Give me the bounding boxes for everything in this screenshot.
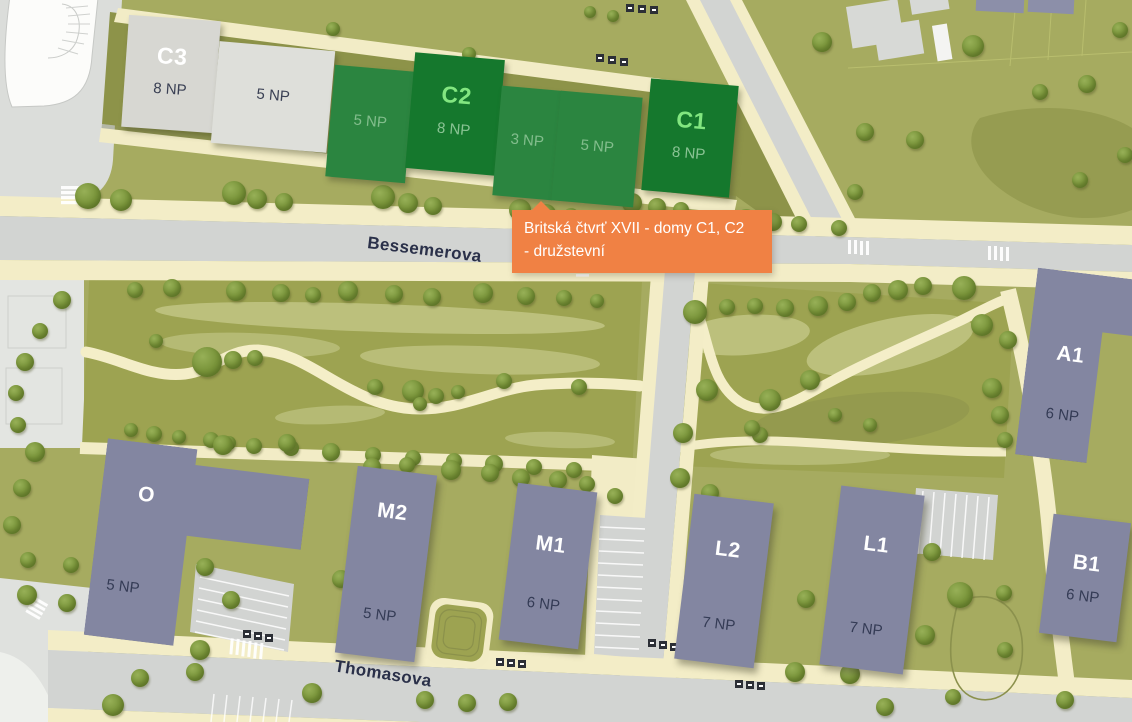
building-label: O [137, 482, 157, 508]
tree [247, 350, 263, 366]
tree [999, 331, 1017, 349]
tree [696, 379, 718, 401]
tree [17, 585, 37, 605]
tree [1072, 172, 1088, 188]
tree [192, 347, 222, 377]
tree [423, 288, 441, 306]
tree [326, 22, 340, 36]
tree [416, 691, 434, 709]
tree [131, 669, 149, 687]
building-floors: 5 NP [353, 111, 388, 131]
tree [828, 408, 842, 422]
tree [110, 189, 132, 211]
building-floors: 5 NP [362, 605, 397, 626]
tree [915, 625, 935, 645]
building-floors: 6 NP [526, 594, 561, 615]
tree [1112, 22, 1128, 38]
tree [607, 10, 619, 22]
tree [127, 282, 143, 298]
building-green-5np-west[interactable]: 5 NP [325, 65, 414, 184]
tree [982, 378, 1002, 398]
tree [481, 464, 499, 482]
playground [423, 596, 495, 669]
building-green-3np[interactable]: 3 NP [492, 86, 561, 201]
tree [785, 662, 805, 682]
tree [124, 423, 138, 437]
tree [222, 181, 246, 205]
building-c2[interactable]: C2 8 NP [405, 52, 505, 175]
building-label: L1 [862, 532, 890, 559]
tree [566, 462, 582, 478]
tree [607, 488, 623, 504]
tree [213, 435, 233, 455]
tree [556, 290, 572, 306]
tree [102, 694, 124, 716]
tree [322, 443, 340, 461]
tree [338, 281, 358, 301]
tree [222, 591, 240, 609]
tree [413, 397, 427, 411]
tree [367, 379, 383, 395]
tree [451, 385, 465, 399]
building-label: A1 [1055, 342, 1086, 369]
tree [371, 185, 395, 209]
building-label: M1 [534, 531, 567, 559]
tree [473, 283, 493, 303]
parking-m1 [594, 515, 646, 658]
building-c3[interactable]: C3 8 NP [121, 15, 221, 133]
tree [747, 298, 763, 314]
tree [163, 279, 181, 297]
tree [914, 277, 932, 295]
tree [424, 197, 442, 215]
tree [962, 35, 984, 57]
tree [190, 640, 210, 660]
building-floors: 6 NP [1065, 585, 1100, 606]
tree [398, 193, 418, 213]
building-b1[interactable]: B1 6 NP [1039, 514, 1131, 643]
tree [10, 417, 26, 433]
tree [63, 557, 79, 573]
tree [172, 430, 186, 444]
tree [1056, 691, 1074, 709]
tree [923, 543, 941, 561]
tree [13, 479, 31, 497]
tree [571, 379, 587, 395]
tree [441, 460, 461, 480]
tree [517, 287, 535, 305]
tree [272, 284, 290, 302]
site-plan-map: C3 8 NP 5 NP 5 NP C2 8 NP 3 NP 5 NP C1 8… [0, 0, 1132, 722]
building-label: M2 [376, 499, 409, 527]
tree [590, 294, 604, 308]
tree [1117, 147, 1132, 163]
tree [997, 642, 1013, 658]
tree [1032, 84, 1048, 100]
tree [808, 296, 828, 316]
building-floors: 5 NP [256, 85, 291, 105]
building-grey-5np[interactable]: 5 NP [211, 41, 335, 153]
tree [3, 516, 21, 534]
map-tooltip[interactable]: Britská čtvrť XVII - domy C1, C2 - družs… [512, 210, 772, 273]
tree [8, 385, 24, 401]
building-label: B1 [1071, 550, 1102, 577]
tree [991, 406, 1009, 424]
tree [863, 418, 877, 432]
building-floors: 8 NP [671, 143, 706, 163]
tooltip-line-2: - družstevní [524, 240, 760, 263]
tree [838, 293, 856, 311]
tree [670, 468, 690, 488]
tree [458, 694, 476, 712]
building-floors: 5 NP [580, 137, 615, 157]
tree [247, 189, 267, 209]
building-label: C3 [156, 42, 188, 71]
tree [759, 389, 781, 411]
tree [744, 420, 760, 436]
tree [856, 123, 874, 141]
tree [945, 689, 961, 705]
tree [196, 558, 214, 576]
tree [683, 300, 707, 324]
building-floors: 8 NP [153, 80, 187, 99]
tree [305, 287, 321, 303]
tree [876, 698, 894, 716]
tree [496, 373, 512, 389]
tree [812, 32, 832, 52]
tree [246, 438, 262, 454]
tree [149, 334, 163, 348]
tree [776, 299, 794, 317]
tree [800, 370, 820, 390]
tree [947, 582, 973, 608]
tree [952, 276, 976, 300]
building-floors: 5 NP [105, 576, 140, 597]
tree [186, 663, 204, 681]
building-c1[interactable]: C1 8 NP [641, 78, 738, 197]
tree [888, 280, 908, 300]
tree [428, 388, 444, 404]
building-floors: 3 NP [510, 131, 545, 151]
tree [847, 184, 863, 200]
tree [971, 314, 993, 336]
tooltip-line-1: Britská čtvrť XVII - domy C1, C2 [524, 217, 760, 240]
building-label: C1 [675, 105, 708, 135]
tree [997, 432, 1013, 448]
tree [996, 585, 1012, 601]
building-floors: 7 NP [701, 614, 736, 635]
tree [863, 284, 881, 302]
tree [275, 193, 293, 211]
building-floors: 8 NP [436, 119, 471, 139]
tree [906, 131, 924, 149]
tree [1078, 75, 1096, 93]
tree [25, 442, 45, 462]
tree [499, 693, 517, 711]
tree [831, 220, 847, 236]
tree [584, 6, 596, 18]
tree [385, 285, 403, 303]
tree [58, 594, 76, 612]
building-green-5np-east[interactable]: 5 NP [551, 91, 642, 208]
tree [16, 353, 34, 371]
tree [302, 683, 322, 703]
tree [32, 323, 48, 339]
building-label: L2 [714, 537, 742, 564]
building-label: C2 [440, 80, 473, 110]
tree [226, 281, 246, 301]
tree [146, 426, 162, 442]
tree [797, 590, 815, 608]
tree [791, 216, 807, 232]
tree [75, 183, 101, 209]
building-floors: 6 NP [1045, 405, 1080, 426]
building-floors: 7 NP [848, 619, 883, 640]
tree [673, 423, 693, 443]
tree [224, 351, 242, 369]
tree [20, 552, 36, 568]
tree [53, 291, 71, 309]
tree [719, 299, 735, 315]
tree [278, 434, 296, 452]
